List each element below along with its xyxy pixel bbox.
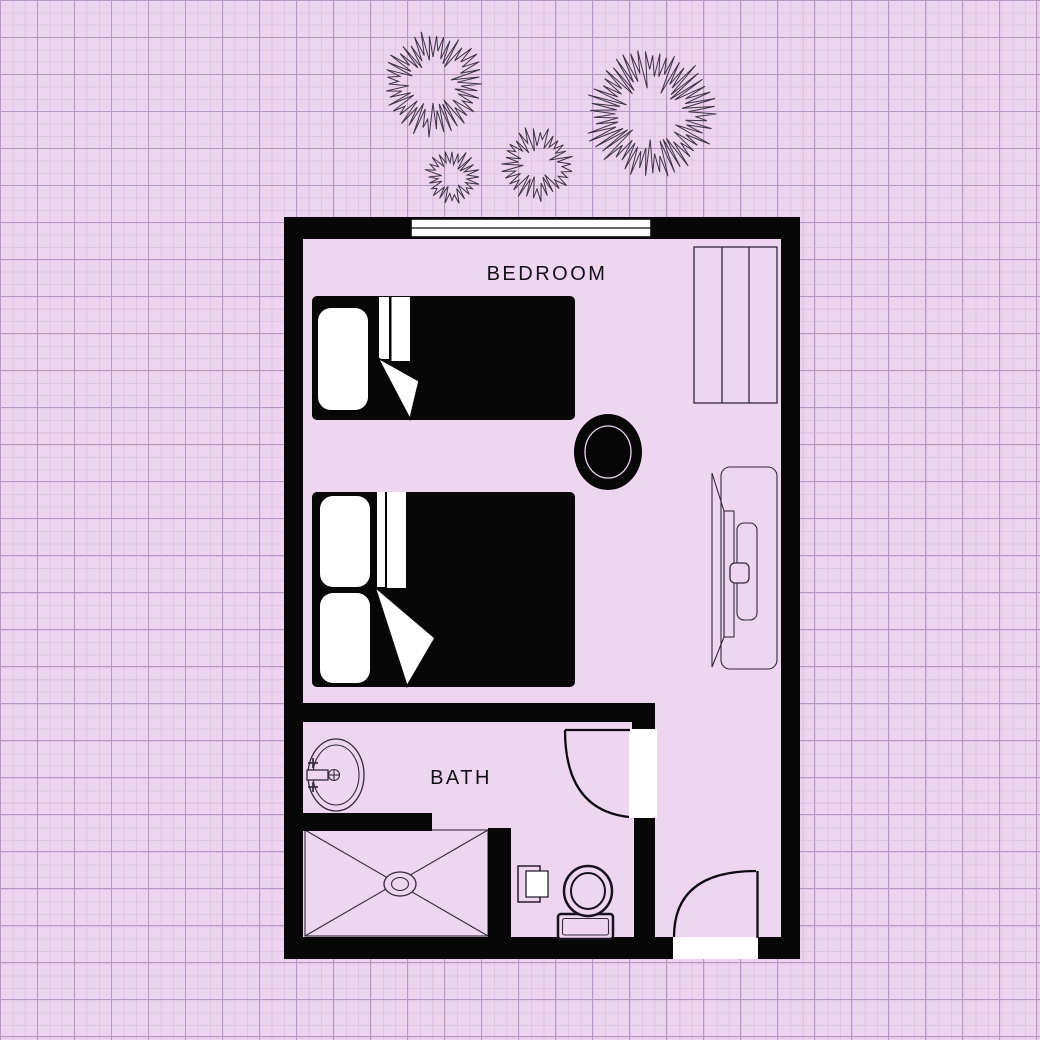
floor-plan-canvas: BEDROOM BATH (0, 0, 1040, 1040)
tv-mount (730, 563, 749, 583)
double-bed-pillow (320, 593, 370, 683)
double-bed-pillow (320, 496, 370, 587)
wall-right (781, 217, 800, 959)
floor-plan: BEDROOM BATH (284, 217, 800, 959)
shrub-icon (425, 152, 479, 204)
shower-drain (384, 872, 416, 896)
bath-label: BATH (430, 767, 492, 789)
entrance-door-opening (673, 937, 758, 959)
shrub-icon (386, 32, 481, 138)
sink-spout (307, 770, 328, 780)
wall-sink-divider (284, 813, 432, 831)
floor-plan-stage: BEDROOM BATH (0, 0, 1040, 1040)
sink-icon (307, 739, 364, 811)
wall-bath-vertical-upper (632, 703, 655, 731)
bedroom-label: BEDROOM (487, 263, 608, 285)
towel-holder-towel (526, 871, 548, 897)
shrub-icon (588, 51, 717, 177)
wall-shower (488, 828, 511, 940)
window-icon (411, 219, 651, 237)
double-bed-sheet-stripe (387, 492, 406, 588)
side-table-icon (574, 414, 642, 490)
single-bed-pillow (318, 308, 368, 410)
shrub-icon (501, 127, 572, 201)
single-bed-sheet-stripe (379, 297, 389, 359)
double-bed-icon (312, 492, 575, 687)
wall-bath-vertical-lower (634, 817, 655, 940)
double-bed-sheet-stripe (377, 492, 385, 587)
single-bed-icon (312, 296, 575, 420)
single-bed-sheet-stripe (392, 297, 411, 361)
wall-bath-divider (284, 703, 655, 722)
wall-left (284, 217, 303, 959)
bath-door-opening (629, 729, 657, 818)
shrubs-group (386, 32, 716, 204)
